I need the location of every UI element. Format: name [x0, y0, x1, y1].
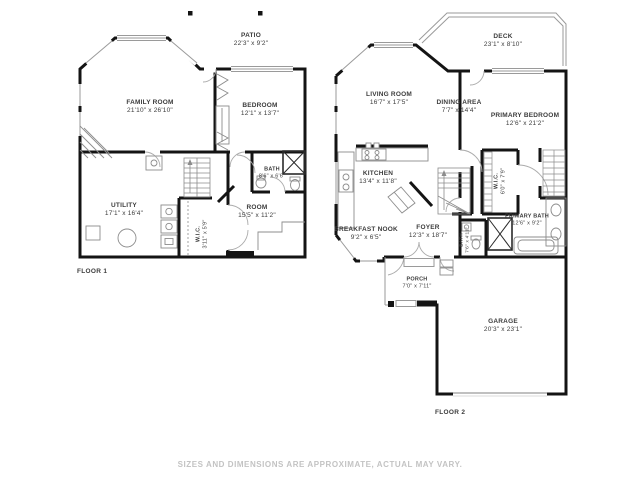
room-name: LIVING ROOM [366, 91, 412, 99]
room-dims: 16'7" x 17'5" [366, 99, 412, 107]
closet-shelf-icon [484, 152, 492, 212]
room-label-wic1: W.I.C. 3'11" x 5'9" [196, 219, 209, 248]
room-name: PATIO [234, 32, 268, 40]
room-label-wic2: W.I.C. 6'0" x 7'9" [494, 168, 507, 194]
front-step [404, 259, 434, 267]
room-name: DINING AREA [437, 99, 482, 107]
disclaimer-text: SIZES AND DIMENSIONS ARE APPROXIMATE, AC… [178, 460, 463, 469]
room-dims: 7'0" x 7'11" [402, 283, 431, 290]
room-name: UTILITY [105, 202, 143, 210]
room-dims: 12'6" x 9'2" [505, 220, 549, 227]
bathtub-icon [514, 237, 558, 254]
water-heater-icon [118, 229, 136, 247]
room-name: BREAKFAST NOOK [334, 226, 398, 234]
room-dims: 21'10" x 26'10" [126, 107, 173, 115]
room-name: GARAGE [484, 318, 522, 326]
bifold-door-icon [217, 74, 228, 100]
sink-icon [256, 178, 266, 188]
floor1-title: FLOOR 1 [77, 268, 107, 275]
room-dims: 12'6" x 21'2" [491, 120, 559, 128]
room-dims: 9'2" x 6'5" [334, 234, 398, 242]
room-label-foyer: FOYER 12'3" x 18'7" [409, 224, 447, 240]
door-threshold [226, 251, 254, 257]
floor1-plan [80, 11, 305, 257]
garage-door [453, 390, 547, 398]
room-label-breakfast-nook: BREAKFAST NOOK 9'2" x 6'5" [334, 226, 398, 242]
double-sink-icon [546, 198, 566, 246]
floor2-plan [336, 13, 566, 398]
fridge-icon [388, 187, 415, 213]
floor1-windows [80, 36, 293, 137]
room-dims: 7'6" x 4'11" [465, 227, 471, 253]
utility-box-icon [86, 226, 100, 240]
room-dims: 17'1" x 16'4" [105, 210, 143, 218]
room-name: PRIMARY BATH [505, 214, 549, 221]
porch-post [388, 301, 394, 307]
room-dims: 15'5" x 11'2" [238, 212, 276, 220]
room-name: DECK [484, 33, 522, 41]
room-label-living-room: LIVING ROOM 16'7" x 17'5" [366, 91, 412, 107]
room-dims: 12'1" x 13'7" [241, 110, 279, 118]
room-dims: 12'3" x 18'7" [409, 232, 447, 240]
room-label-deck: DECK 23'1" x 8'10" [484, 33, 522, 49]
room-label-kitchen: KITCHEN 13'4" x 11'8" [359, 170, 397, 186]
closet-shelf-icon [543, 150, 565, 196]
washer-dryer-icon [161, 205, 177, 248]
room-label-utility: UTILITY 17'1" x 16'4" [105, 202, 143, 218]
shower-icon [283, 151, 305, 174]
patio-post [258, 11, 263, 16]
room-dims: 6'0" x 7'9" [500, 168, 507, 194]
room-label-garage: GARAGE 20'3" x 23'1" [484, 318, 522, 334]
garage-steps [440, 260, 453, 275]
room-name: BEDROOM [241, 102, 279, 110]
room-label-room: ROOM 15'5" x 11'2" [238, 204, 276, 220]
room-label-family-room: FAMILY ROOM 21'10" x 26'10" [126, 99, 173, 115]
kitchen-sink-icon [339, 170, 353, 192]
room-label-bath2: BATH 7'6" x 4'11" [459, 227, 470, 253]
room-name: ROOM [238, 204, 276, 212]
room-label-dining-area: DINING AREA 7'7" x 14'4" [437, 99, 482, 115]
room-label-bath1: BATH 8'6" x 6'6" [259, 167, 285, 180]
room-dims: 20'3" x 23'1" [484, 326, 522, 334]
room-name: FAMILY ROOM [126, 99, 173, 107]
room-label-bedroom: BEDROOM 12'1" x 13'7" [241, 102, 279, 118]
patio-post [188, 11, 193, 16]
room-dims: 7'7" x 14'4" [437, 107, 482, 115]
room-label-primary-bath: PRIMARY BATH 12'6" x 9'2" [505, 214, 549, 227]
bifold-door-icon [217, 132, 228, 150]
floorplan-drawing [0, 0, 640, 480]
toilet-icon [290, 177, 300, 181]
room-name: PORCH [402, 277, 431, 284]
room-dims: 13'4" x 11'8" [359, 178, 397, 186]
room-dims: 8'6" x 6'6" [259, 173, 285, 180]
room-label-patio: PATIO 22'3" x 9'2" [234, 32, 268, 48]
room-dims: 23'1" x 8'10" [484, 41, 522, 49]
room-label-porch: PORCH 7'0" x 7'11" [402, 277, 431, 290]
builtin-counter-icon [258, 222, 305, 250]
room-label-primary-bedroom: PRIMARY BEDROOM 12'6" x 21'2" [491, 112, 559, 128]
porch-rail [396, 301, 416, 307]
room-name: FOYER [409, 224, 447, 232]
floor2-title: FLOOR 2 [435, 409, 465, 416]
floorplan-page: PATIO 22'3" x 9'2" FAMILY ROOM 21'10" x … [0, 0, 640, 480]
room-dims: 22'3" x 9'2" [234, 40, 268, 48]
room-name: KITCHEN [359, 170, 397, 178]
room-dims: 3'11" x 5'9" [202, 219, 209, 248]
stairs-icon [184, 158, 210, 197]
room-name: PRIMARY BEDROOM [491, 112, 559, 120]
